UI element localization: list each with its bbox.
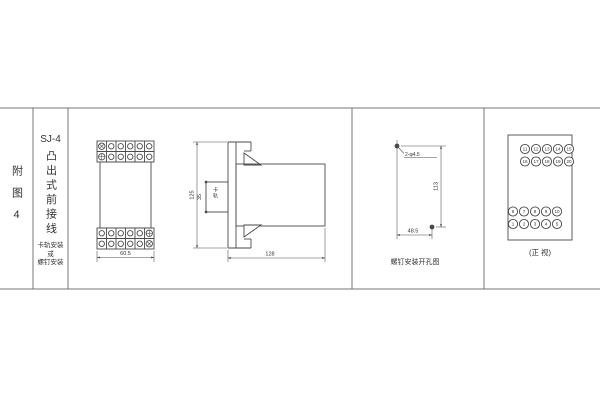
terminal: 15 [564, 144, 573, 153]
side-body-outline [236, 164, 325, 226]
terminal-number: 10 [554, 209, 560, 214]
relay-side-view: 125 35 128 [190, 142, 326, 262]
mounting-note: 卡轨安装 或 螺钉安装 [38, 242, 64, 268]
terminal: 18 [542, 157, 551, 166]
terminal: 2 [519, 219, 528, 228]
terminal: 19 [553, 157, 562, 166]
figure-label: 附图4 [9, 165, 25, 232]
bottom-clip-wedge [244, 225, 261, 237]
terminal-number: 7 [523, 209, 526, 214]
terminal-number: 11 [523, 147, 528, 152]
drill-height-value: 113 [434, 182, 440, 191]
type-name: 凸出式前接线 [43, 150, 59, 237]
terminal: 7 [519, 207, 528, 216]
model-cell: SJ-4 凸出式前接线 卡轨安装 或 螺钉安装 [33, 108, 68, 289]
terminal-view-caption: (正 视) [529, 247, 552, 257]
terminal: 3 [530, 219, 539, 228]
terminal: 5 [552, 219, 561, 228]
terminal-number: 14 [555, 147, 561, 152]
side-depth-value: 128 [265, 252, 274, 258]
holes-label: 2-φ4.5 [405, 152, 420, 158]
terminal: 1 [508, 219, 517, 228]
terminal-number: 18 [544, 159, 550, 164]
figure-label-cell: 附图4 [0, 108, 33, 289]
terminal-number: 9 [545, 209, 548, 214]
mounting-note-line3: 螺钉安装 [38, 259, 64, 268]
drawing-linework: 60.5 125 35 [0, 0, 600, 400]
terminal-number: 2 [523, 222, 526, 227]
top-clip-wedge [244, 153, 261, 165]
relay-front-view: 60.5 [97, 141, 154, 262]
terminal: 16 [520, 157, 529, 166]
terminal: 11 [520, 144, 529, 153]
terminal-front-view: 11 12 13 14 15 16 17 18 19 20 6 7 8 9 10… [508, 135, 574, 257]
terminal: 6 [508, 207, 517, 216]
terminal: 13 [542, 144, 551, 153]
front-width-dimension: 60.5 [97, 251, 154, 262]
relay-body-outline [100, 162, 151, 228]
terminal-number: 17 [533, 159, 539, 164]
front-width-value: 60.5 [120, 251, 131, 257]
terminal: 4 [541, 219, 550, 228]
side-height-value: 125 [190, 190, 196, 199]
terminal: 12 [531, 144, 540, 153]
drilling-diagram: 2-φ4.5 113 48.5 螺钉安装开孔图 [391, 140, 447, 266]
terminal-number: 20 [566, 159, 572, 164]
drawing-sheet: 60.5 125 35 [0, 0, 600, 400]
terminal: 14 [553, 144, 562, 153]
terminal-number: 5 [556, 222, 559, 227]
slot-dim-value: 35 [197, 194, 203, 200]
drill-width-value: 48.5 [408, 229, 419, 235]
terminal-number: 6 [512, 209, 515, 214]
drill-hole-bottom [430, 225, 435, 230]
side-depth-dimension: 128 [228, 228, 325, 262]
drilling-diagram-caption: 螺钉安装开孔图 [391, 257, 440, 266]
terminal: 8 [530, 207, 539, 216]
terminal: 17 [531, 157, 540, 166]
terminal-number: 12 [533, 147, 539, 152]
terminal-number: 16 [522, 159, 528, 164]
terminal-number: 3 [534, 222, 537, 227]
rail-slot-label: 卡轨 [212, 187, 219, 199]
terminal: 20 [564, 157, 573, 166]
terminal: 9 [541, 207, 550, 216]
model-label: SJ-4 [40, 134, 61, 145]
mounting-note-line1: 卡轨安装 [38, 242, 64, 251]
terminal-number: 19 [555, 159, 561, 164]
terminal-number: 1 [512, 222, 515, 227]
terminal: 10 [552, 207, 561, 216]
mounting-note-line2: 或 [38, 251, 64, 260]
terminal-number: 15 [566, 147, 572, 152]
terminal-number: 4 [545, 222, 548, 227]
terminal-number: 8 [534, 209, 537, 214]
terminal-number: 13 [544, 147, 550, 152]
